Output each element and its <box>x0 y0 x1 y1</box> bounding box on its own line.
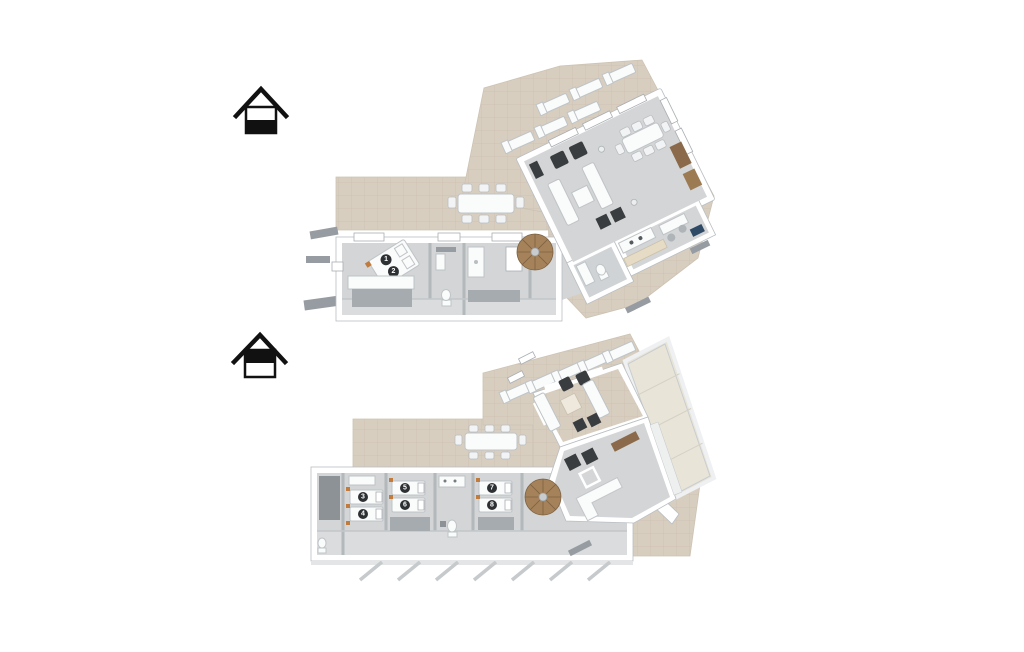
svg-text:8: 8 <box>490 502 494 509</box>
floorplan-canvas: 1 2 <box>0 0 1024 652</box>
bed-number-badge: 8 <box>487 500 497 510</box>
windows <box>354 233 522 241</box>
svg-text:1: 1 <box>384 256 388 263</box>
bed: 3 <box>350 490 383 504</box>
bed-number-badge: 5 <box>400 483 410 493</box>
bed: 4 <box>350 507 383 521</box>
balcony-ledge <box>303 296 340 311</box>
bed-number-badge: 6 <box>400 500 410 510</box>
bedroom-3: 5 6 <box>389 478 430 531</box>
toilet <box>318 538 326 553</box>
bench-shadow <box>352 289 412 307</box>
bin <box>440 521 446 527</box>
washbasin <box>436 254 445 270</box>
toilet <box>442 290 452 307</box>
floorplan-drawing: 1 2 <box>0 0 1024 652</box>
bed: 5 <box>392 481 425 495</box>
house-upper-half <box>245 350 275 363</box>
svg-text:5: 5 <box>403 485 407 492</box>
ground-floor-plan: 1 2 <box>303 60 732 321</box>
dresser <box>349 476 375 485</box>
shelf <box>436 247 456 252</box>
wall-cabinet <box>332 262 343 271</box>
bed-number-badge: 4 <box>358 509 368 519</box>
closet <box>319 476 340 520</box>
bench <box>348 276 414 289</box>
bed-number-badge: 3 <box>358 492 368 502</box>
svg-text:2: 2 <box>392 268 396 275</box>
washbasin <box>439 476 465 487</box>
house-lower-half <box>246 120 276 133</box>
deck-hatch <box>311 561 633 580</box>
bed-number-badge: 7 <box>487 483 497 493</box>
first-floor-plan: 3 4 <box>311 334 714 580</box>
spiral-staircase <box>525 479 561 515</box>
bed: 8 <box>479 498 512 512</box>
bedroom-4: 7 8 <box>476 478 514 530</box>
bench <box>390 517 430 531</box>
upper-floor-icon[interactable] <box>234 335 285 377</box>
svg-text:3: 3 <box>361 494 365 501</box>
corridor <box>317 531 627 555</box>
bench <box>478 517 514 530</box>
balcony-ledge <box>310 227 339 240</box>
toilet <box>448 520 458 537</box>
bench <box>468 290 520 302</box>
svg-text:7: 7 <box>490 485 494 492</box>
svg-text:4: 4 <box>361 511 365 518</box>
balcony-ledge <box>306 256 330 263</box>
bed: 6 <box>392 498 425 512</box>
svg-text:6: 6 <box>403 502 407 509</box>
bed: 7 <box>479 481 512 495</box>
ground-floor-icon[interactable] <box>236 89 286 133</box>
spiral-staircase <box>517 234 553 270</box>
